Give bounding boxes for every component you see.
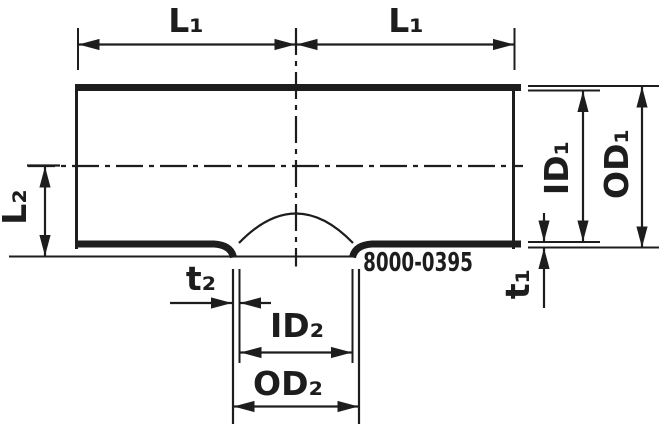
t1-label: t₁ [498,269,537,299]
tee-fitting-drawing: L₁ L₁ L₂ ID₁ OD₁ t₁ t₂ ID₂ OD₂ 8000-0395 [0,0,659,425]
t2-label: t₂ [186,259,216,298]
pipe-bottom-wall-left [75,244,234,258]
id1-label: ID₁ [537,141,576,195]
od2-label: OD₂ [253,364,323,403]
od1-label: OD₁ [597,129,636,199]
l2-label: L₂ [0,189,34,224]
l1-right-label: L₁ [388,1,423,40]
id2-label: ID₂ [270,306,324,345]
part-number: 8000-0395 [363,248,473,278]
l1-left-label: L₁ [168,1,203,40]
